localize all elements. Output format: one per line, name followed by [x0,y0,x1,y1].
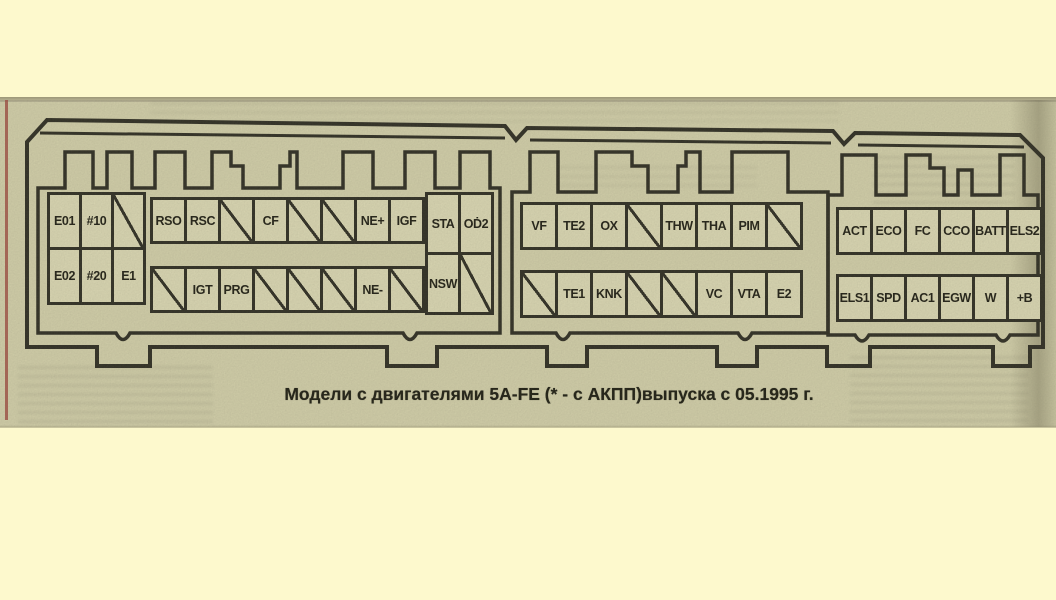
connector1-right-top-row: STA OḊ2 [425,192,494,255]
pin-cell: PRG [218,266,255,313]
scanned-diagram-strip: E01 #10 E02 #20 E1 RSO RSC CF NE+ IGF IG… [0,100,1056,427]
pin-cell: VC [695,270,733,318]
pin-cell-empty [286,197,323,244]
pin-cell: OX [590,202,628,250]
pin-cell: VTA [730,270,768,318]
pin-cell-empty [660,270,698,318]
pin-cell: W [972,274,1009,322]
connector3-top-row: ACT ECO FC CCO BATT ELS2 [836,207,1043,255]
pin-cell: EGW [938,274,975,322]
pin-cell: ELS2 [1006,207,1043,255]
pin-cell: PIM [730,202,768,250]
pin-cell: OḊ2 [458,192,494,255]
connector1-middle-top-row: RSO RSC CF NE+ IGF [150,197,425,244]
connector2-top-row: VF TE2 OX THW THA PIM [520,202,803,250]
pin-cell: #10 [79,192,114,250]
scanned-manual-page: E01 #10 E02 #20 E1 RSO RSC CF NE+ IGF IG… [0,0,1056,600]
pin-cell: E1 [111,247,146,305]
pin-cell: SPD [870,274,907,322]
pin-cell: +B [1006,274,1043,322]
pin-cell: ACT [836,207,873,255]
pin-cell: IGF [388,197,425,244]
connector3-bottom-row: ELS1 SPD AC1 EGW W +B [836,274,1043,322]
pin-cell-empty [520,270,558,318]
pin-cell: CCO [938,207,975,255]
connector1-left-top-row: E01 #10 [47,192,146,250]
pin-cell-empty [218,197,255,244]
pin-cell: AC1 [904,274,941,322]
pin-cell-empty [625,202,663,250]
connector1-right-bottom-row: NSW [425,252,494,315]
pin-cell-empty [286,266,323,313]
scan-bottom-edge [0,425,1056,428]
pin-cell: RSO [150,197,187,244]
pin-cell-empty [320,266,357,313]
pin-cell: TE1 [555,270,593,318]
pin-cell-empty [252,266,289,313]
connector2-bottom-row: TE1 KNK VC VTA E2 [520,270,803,318]
connector1-left-bottom-row: E02 #20 E1 [47,247,146,305]
pin-cell-empty [388,266,425,313]
pin-cell: IGT [184,266,221,313]
pin-cell: CF [252,197,289,244]
pin-cell: STA [425,192,461,255]
pin-cell: NE+ [354,197,391,244]
pin-cell-empty [111,192,146,250]
pin-cell: E2 [765,270,803,318]
ecu-pinout-outline-svg [0,100,1056,427]
pin-cell-empty [150,266,187,313]
pin-cell-empty [320,197,357,244]
pin-cell: #20 [79,247,114,305]
pin-cell: NSW [425,252,461,315]
pin-cell: TE2 [555,202,593,250]
pin-cell: ECO [870,207,907,255]
pin-cell: VF [520,202,558,250]
pin-cell-empty [625,270,663,318]
pin-cell: NE- [354,266,391,313]
connector1-middle-bottom-row: IGT PRG NE- [150,266,425,313]
pin-cell: KNK [590,270,628,318]
pin-cell: E02 [47,247,82,305]
diagram-caption: Модели с двигателями 5A-FE (* - с АКПП)в… [0,384,1056,405]
pin-cell: RSC [184,197,221,244]
pin-cell-empty [765,202,803,250]
pin-cell: FC [904,207,941,255]
pin-cell: BATT [972,207,1009,255]
pin-cell: THA [695,202,733,250]
pin-cell: E01 [47,192,82,250]
pin-cell: ELS1 [836,274,873,322]
pin-cell: THW [660,202,698,250]
pin-cell-empty [458,252,494,315]
